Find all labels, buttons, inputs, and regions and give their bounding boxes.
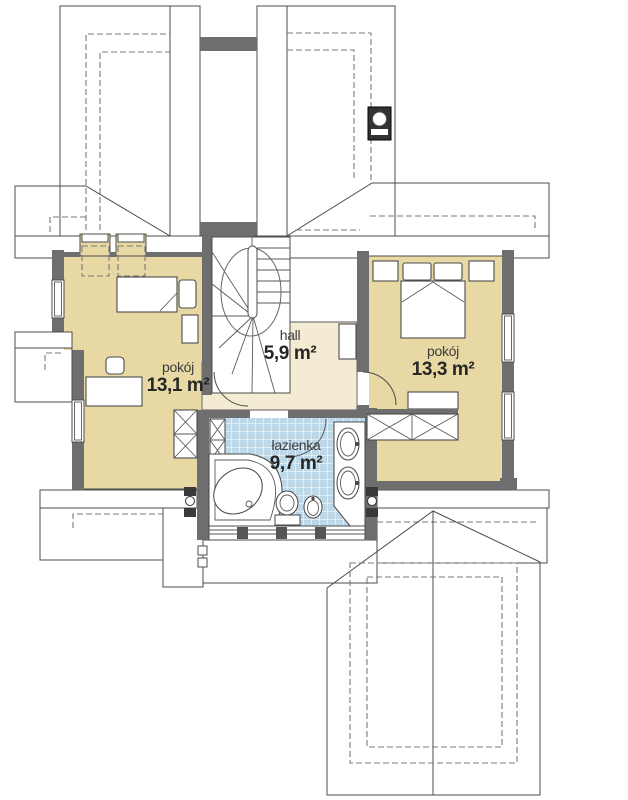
floor-plan-drawing (0, 0, 628, 800)
window-left-upper (52, 280, 64, 318)
roof-gable-main (327, 511, 540, 795)
eaves-band-bottom-right (377, 490, 549, 508)
bed-single (117, 277, 196, 312)
window-left-lower (72, 400, 84, 442)
wardrobe-left (174, 410, 197, 458)
toilet (275, 491, 300, 525)
nightstand-left (373, 261, 398, 281)
chimney-icon (368, 107, 391, 140)
bidet (304, 496, 322, 518)
window-right-lower (502, 392, 514, 440)
floor-plan-page: pokój 13,1 m² hall 5,9 m² pokój 13,3 m² … (0, 0, 628, 800)
roof-top-left (15, 6, 170, 237)
wall-link-bottom (200, 222, 257, 237)
pillow (434, 263, 462, 280)
roof-band-right (287, 183, 549, 236)
pillow (403, 263, 431, 280)
window-right-upper (502, 314, 514, 362)
eaves-band-bottom-left (40, 490, 197, 508)
roof-top-right (287, 6, 549, 236)
vent-stack-left (184, 487, 196, 517)
bathtub-corner (205, 454, 282, 526)
desk-right (408, 392, 458, 409)
nightstand-right (469, 261, 494, 281)
staircase (212, 237, 290, 393)
washbasin-counter (334, 422, 365, 526)
stair-railing (248, 246, 257, 318)
vent-stack-right (366, 487, 378, 517)
nightstand (182, 315, 198, 343)
desk-left (86, 377, 142, 406)
wardrobe-right (367, 409, 458, 440)
bathroom-window-band (209, 526, 365, 540)
pillow (179, 280, 196, 308)
void-strips-top (170, 6, 287, 237)
balcony-left (15, 332, 72, 402)
wall-link-top (200, 37, 257, 51)
chair (106, 357, 124, 374)
hall-shelf (339, 324, 356, 359)
